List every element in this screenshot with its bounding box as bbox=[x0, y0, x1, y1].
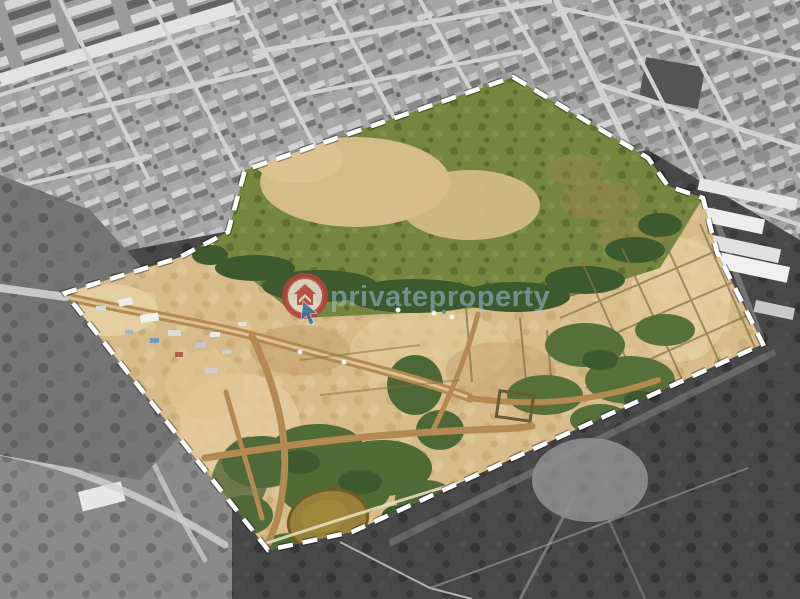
cleared-gray-patch bbox=[532, 438, 648, 522]
watermark-text: privateproperty bbox=[330, 281, 550, 313]
aerial-photo: privateproperty bbox=[0, 0, 800, 599]
aerial-photo-listing-image: privateproperty bbox=[0, 0, 800, 599]
